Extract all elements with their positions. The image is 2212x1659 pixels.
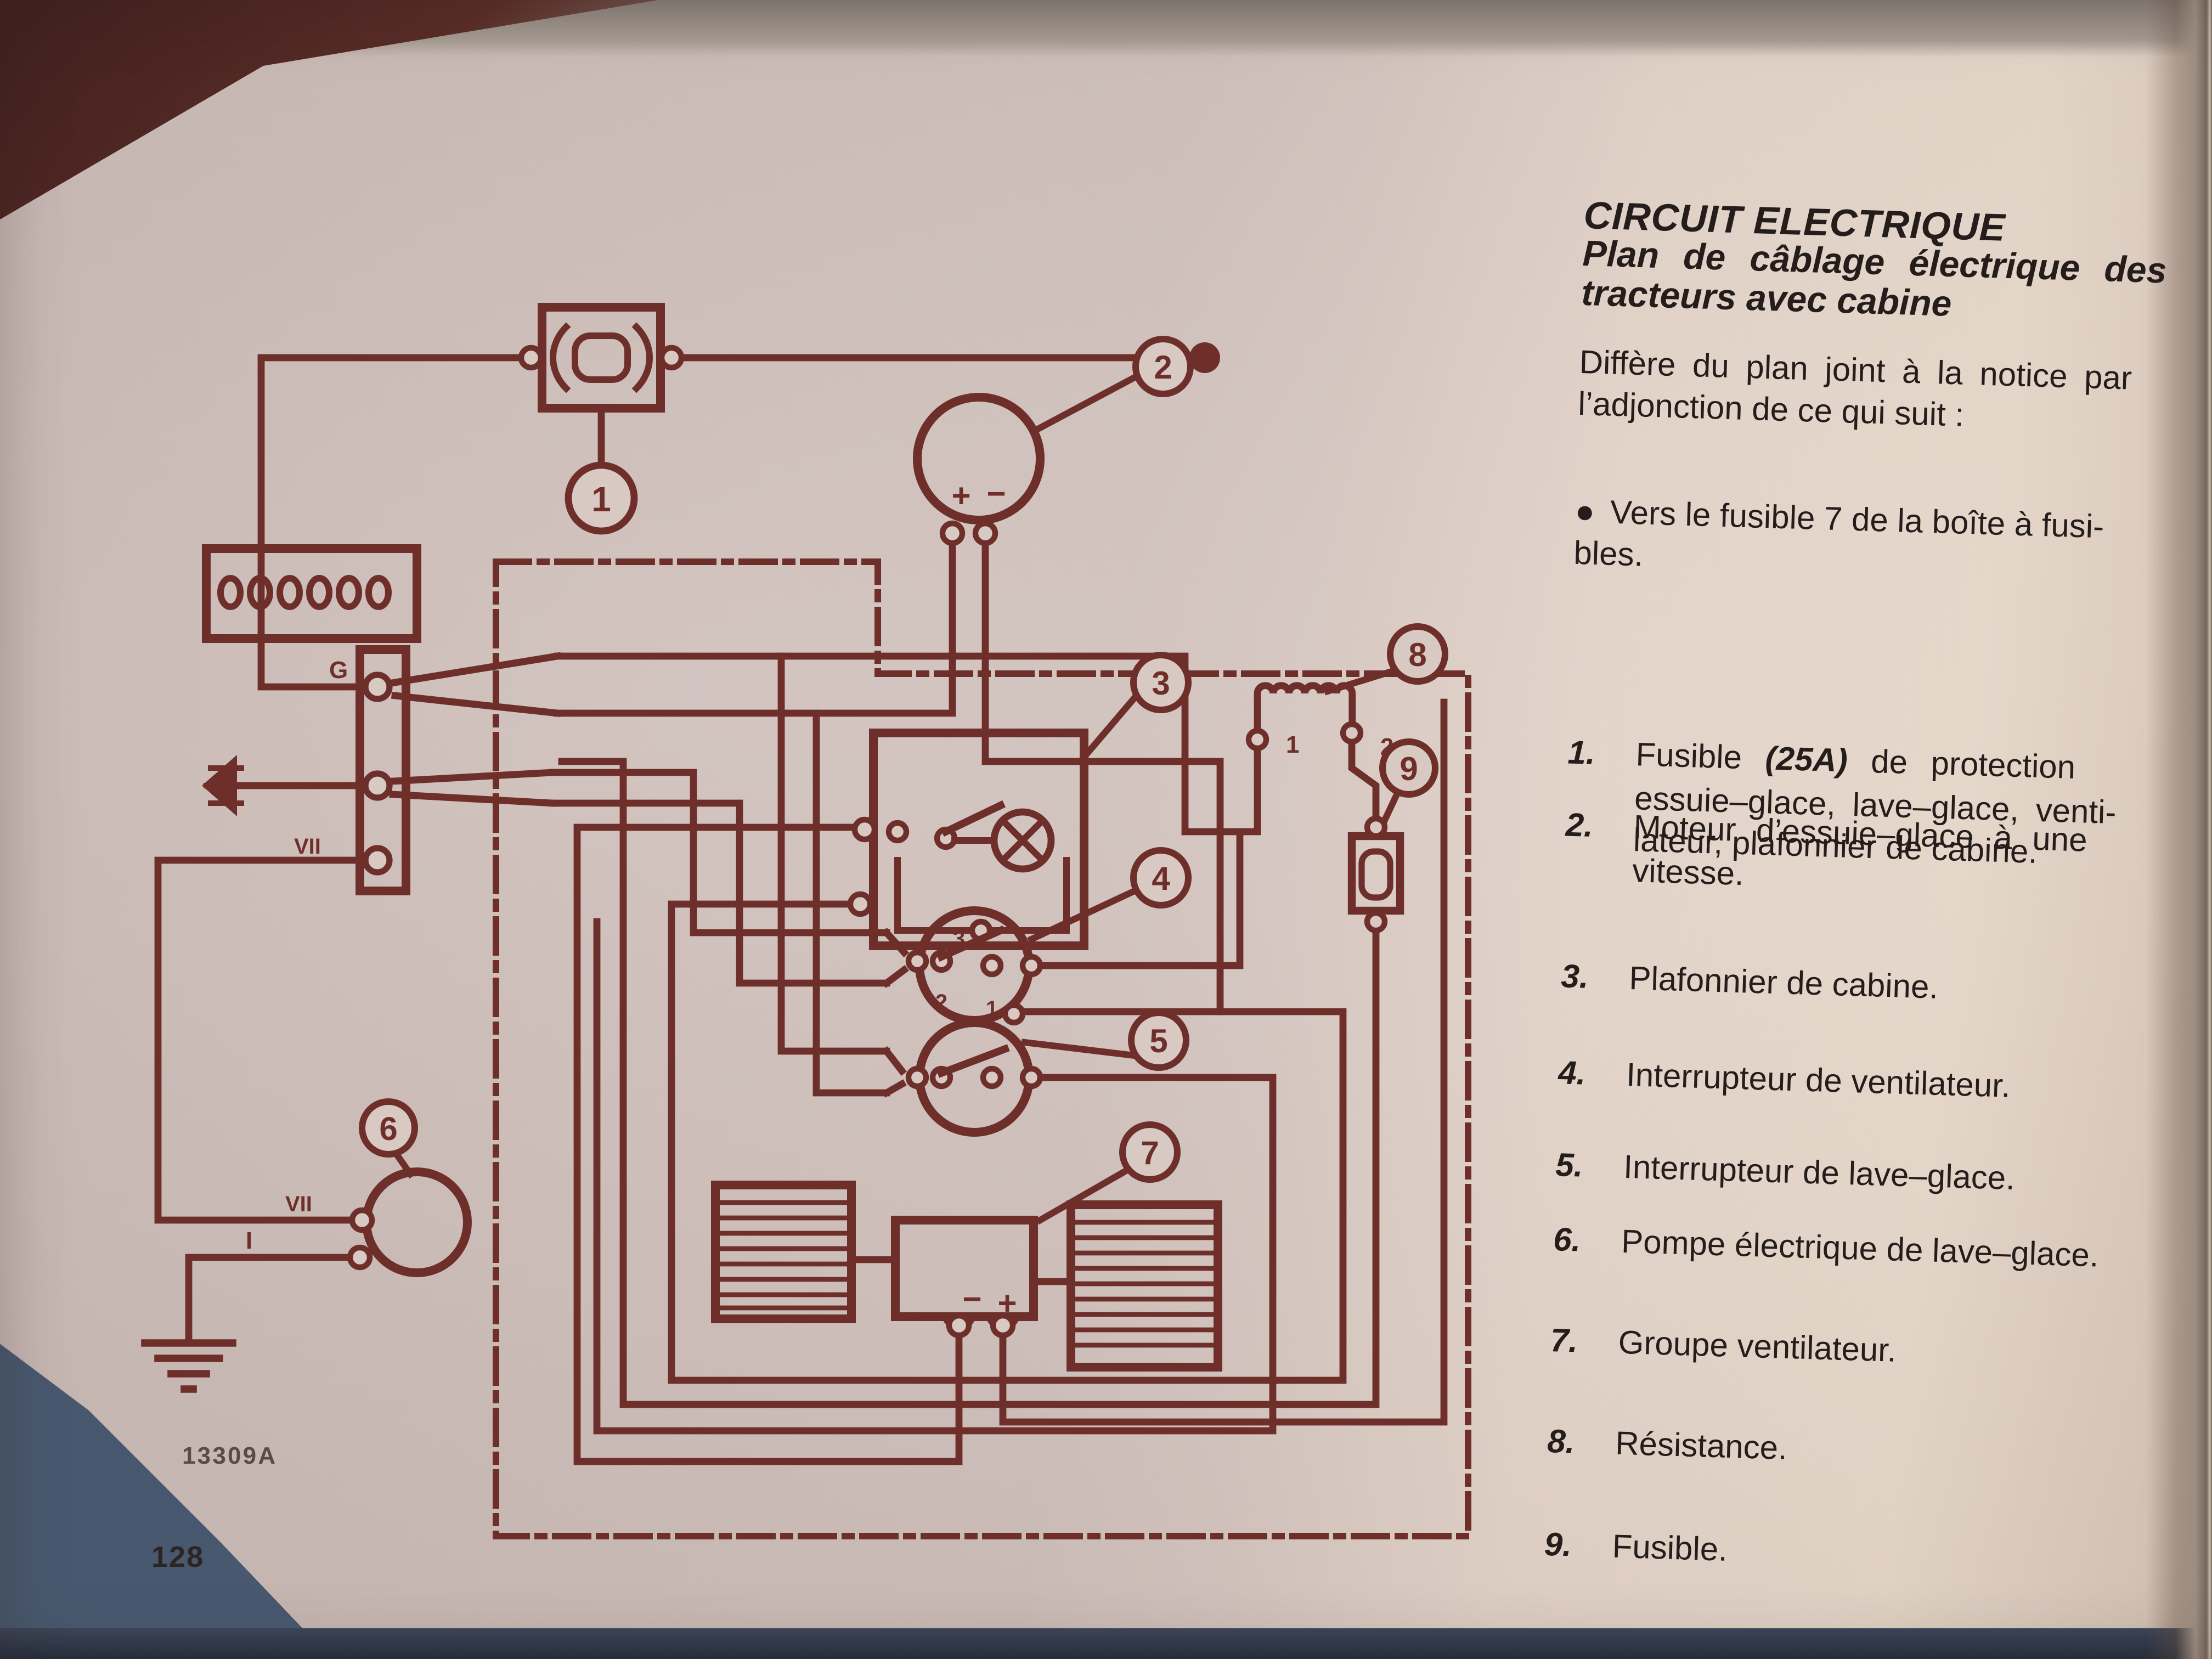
legend-item-1-text2: de protection: [1847, 743, 2076, 787]
legend-item-1-number: 1.: [1567, 733, 1595, 776]
legend-item-6-number: 6.: [1553, 1220, 1581, 1263]
coil-terminal1-label: 1: [1286, 731, 1299, 758]
callout-circles: 1 2 3 4 5 6 7 8 9: [362, 339, 1445, 1180]
bullet-text: Vers le fusible 7 de la boîte à fusi-: [1610, 495, 2104, 547]
callout-5: 5: [1149, 1023, 1167, 1059]
g-terminal-label: G: [329, 657, 348, 684]
legend-item-7: 7. Groupe ventilateur.: [1550, 1321, 2212, 1383]
washer-switch-symbol: [909, 1023, 1040, 1132]
callout-6: 6: [379, 1110, 397, 1147]
figure-code: 13309A: [182, 1444, 277, 1470]
legend-item-5-number: 5.: [1555, 1145, 1583, 1188]
manual-page-photo: + −: [0, 0, 2212, 1659]
bullet-dot: ●: [1575, 494, 1595, 532]
callout-9: 9: [1400, 751, 1418, 787]
page-number: 128: [151, 1541, 204, 1573]
legend-item-4-number: 4.: [1558, 1053, 1586, 1096]
legend-item-1-text: Fusible: [1635, 737, 1766, 778]
legend-item-6: 6. Pompe électrique de lave–glace.: [1553, 1220, 2212, 1282]
fuse-9-symbol: [1352, 819, 1400, 930]
legend-item-5-line1: Interrupteur de lave–glace.: [1623, 1147, 2212, 1208]
legend-item-9-number: 9.: [1544, 1525, 1572, 1568]
callout-leaders: [395, 377, 1398, 1220]
legend-text-column: CIRCUIT ELECTRIQUE Plan de câblage élect…: [1543, 193, 2190, 1615]
legend-item-3: 3. Plafonnier de cabine.: [1560, 956, 2212, 1019]
legend-item-3-number: 3.: [1560, 956, 1589, 1000]
left-connector-symbol: [360, 650, 406, 891]
wire-end-dot: [1189, 342, 1220, 373]
sw4-terminal1-label: 1: [986, 997, 998, 1021]
callout-1: 1: [591, 479, 611, 519]
washer-pump-symbol: [350, 1172, 467, 1273]
callout-7: 7: [1141, 1135, 1159, 1171]
wiper-motor-symbol: + −: [917, 397, 1040, 543]
legend-item-4-line1: Interrupteur de ventilateur.: [1626, 1055, 2212, 1116]
sw4-terminal2-label: 2: [935, 990, 947, 1014]
legend-item-1-bold: (25A): [1765, 741, 1848, 780]
arrow-connector-icon: [202, 755, 246, 816]
vii-pump-label: VII: [285, 1192, 312, 1216]
legend-item-6-line1: Pompe électrique de lave–glace.: [1621, 1222, 2212, 1283]
resistance-coil-symbol: 1 2: [1249, 686, 1393, 760]
bullet-line1: ●Vers le fusible 7 de la boîte à fusi-: [1575, 492, 2105, 549]
legend-item-3-line1: Plafonnier de cabine.: [1628, 958, 2212, 1019]
legend-item-8-number: 8.: [1547, 1421, 1575, 1465]
sw4-terminal3-label: 3: [953, 927, 965, 951]
callout-3: 3: [1152, 665, 1170, 702]
fanbox-minus-label: −: [962, 1280, 981, 1317]
ground-icon: [145, 1343, 233, 1389]
legend-item-8-line1: Résistance.: [1615, 1424, 2212, 1485]
legend-item-7-number: 7.: [1550, 1321, 1578, 1364]
motor-plus-label: +: [951, 477, 970, 514]
legend-item-9-line1: Fusible.: [1612, 1527, 2212, 1588]
i-pump-label: I: [246, 1227, 252, 1254]
vii-connector-label: VII: [294, 834, 321, 859]
legend-item-2: 2. Moteur d’essuie–glace à une vitesse.: [1564, 805, 2212, 911]
legend-item-9: 9. Fusible.: [1544, 1525, 2212, 1587]
legend-item-2-number: 2.: [1565, 805, 1594, 849]
legend-item-4: 4. Interrupteur de ventilateur.: [1558, 1053, 2212, 1115]
legend-item-5: 5. Interrupteur de lave–glace.: [1555, 1145, 2212, 1207]
fan-group-symbol: − +: [715, 1185, 1218, 1367]
callout-4: 4: [1152, 860, 1170, 897]
legend-item-8: 8. Résistance.: [1547, 1421, 2212, 1484]
callout-8: 8: [1408, 636, 1426, 673]
motor-minus-label: −: [986, 475, 1006, 512]
bullet-line2: bles.: [1573, 533, 1644, 577]
legend-item-7-line1: Groupe ventilateur.: [1618, 1323, 2212, 1384]
terminal-strip-symbol: [206, 549, 417, 639]
fuse-1-symbol: [521, 307, 681, 408]
callout-2: 2: [1154, 349, 1172, 386]
terminal-labels: G VII VII I: [246, 657, 348, 1254]
